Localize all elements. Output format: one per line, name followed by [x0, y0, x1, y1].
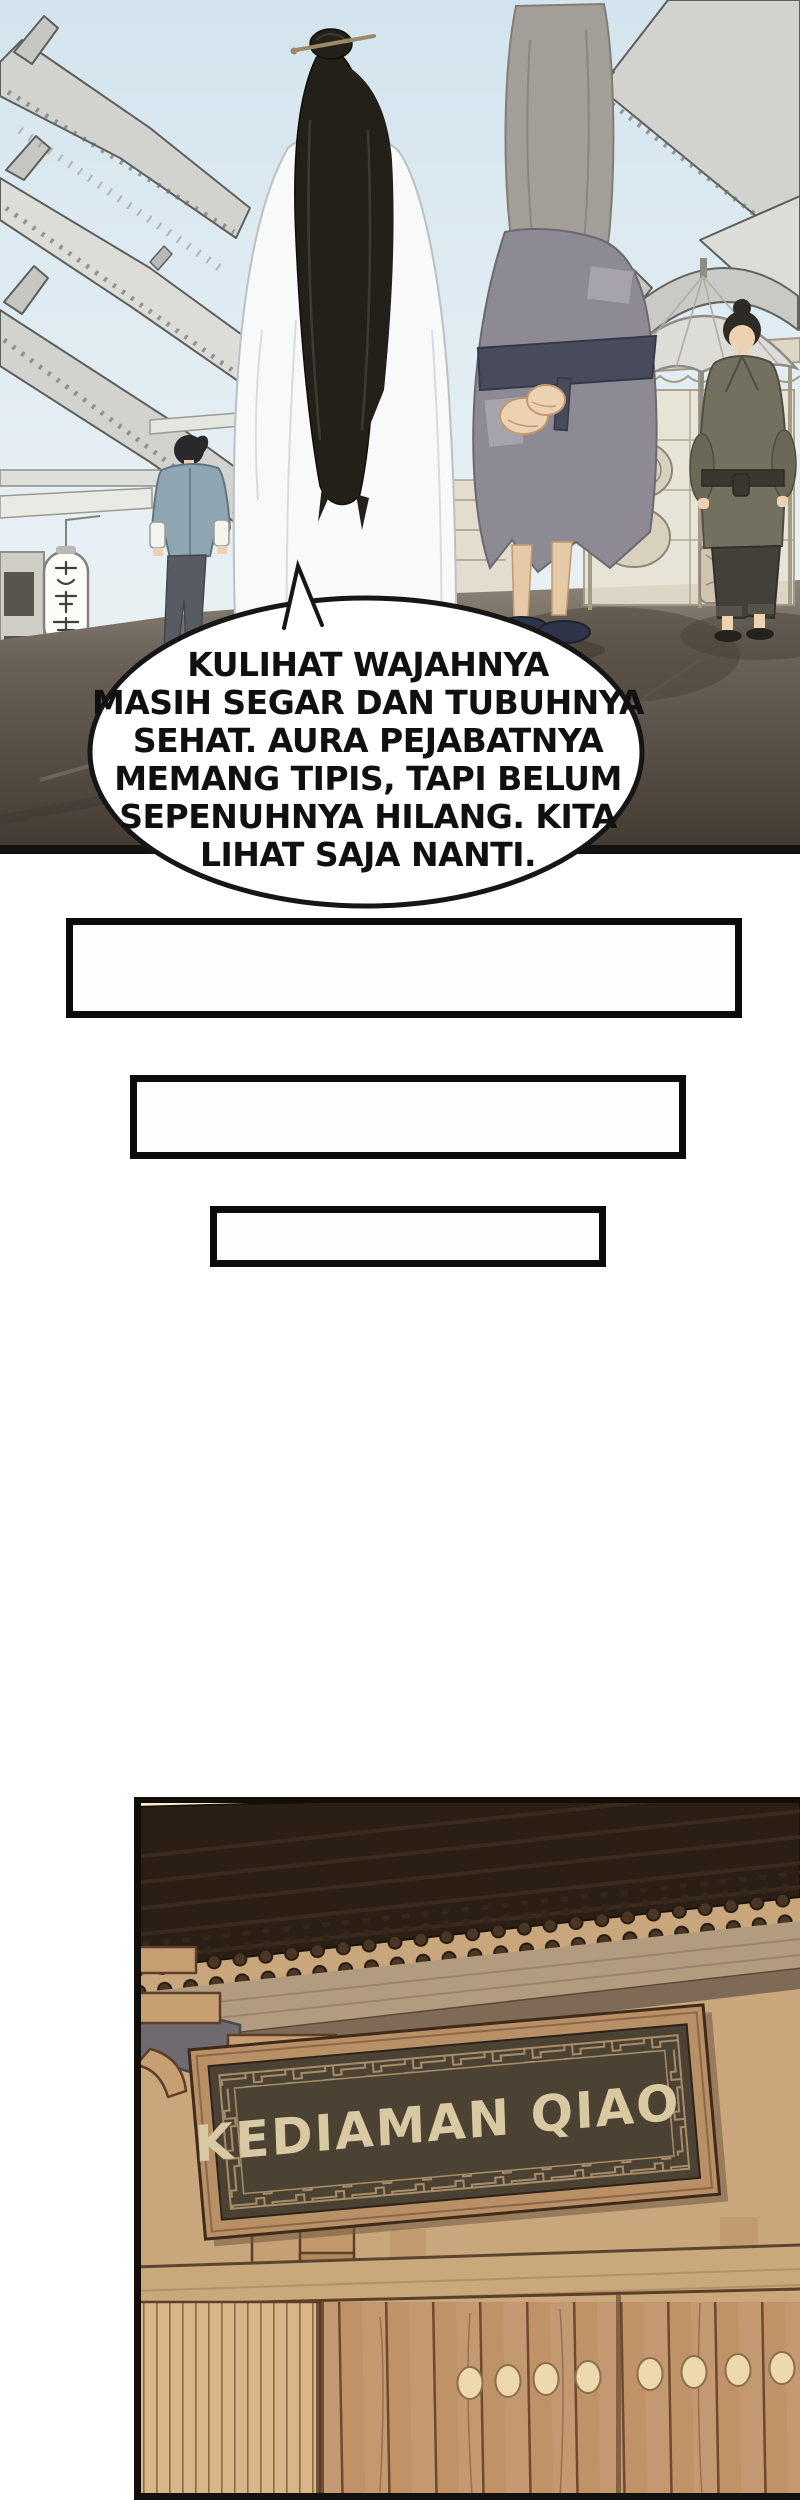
comic-page: KULIHAT WAJAHNYA MASIH SEGAR DAN TUBUHNY…	[0, 0, 800, 2500]
speech-line: SEHAT. AURA PEJABATNYA	[133, 721, 604, 760]
empty-dialogue-box-2	[130, 1075, 686, 1159]
speech-line: MASIH SEGAR DAN TUBUHNYA	[92, 683, 645, 722]
side-slat-door	[134, 2302, 320, 2500]
speech-line: LIHAT SAJA NANTI.	[200, 835, 536, 874]
empty-dialogue-box-1	[66, 918, 742, 1018]
speech-line: MEMANG TIPIS, TAPI BELUM	[114, 759, 622, 798]
empty-dialogue-box-3	[210, 1206, 606, 1267]
speech-line: SEPENUHNYA HILANG. KITA	[119, 797, 617, 836]
street-scene-panel: KULIHAT WAJAHNYA MASIH SEGAR DAN TUBUHNY…	[0, 0, 800, 910]
speech-line: KULIHAT WAJAHNYA	[187, 645, 549, 684]
gate-panel: KEDIAMAN QIAO	[0, 1797, 800, 2500]
